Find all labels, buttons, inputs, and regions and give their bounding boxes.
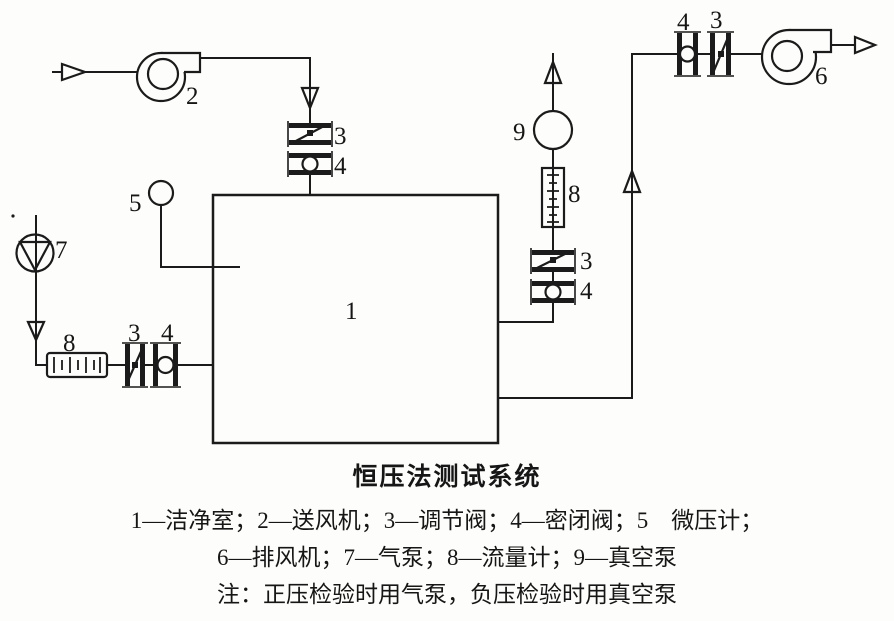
arrow-right-icon	[855, 37, 875, 53]
flowmeter-left-label: 8	[63, 330, 76, 357]
supply-fan-symbol: 2	[137, 53, 200, 110]
exhaust-fan-symbol: 6	[762, 30, 831, 90]
pipe-exhaust	[498, 54, 762, 398]
regulating-valve-right: 3	[531, 248, 593, 275]
exhaust-fan-label: 6	[815, 63, 828, 90]
sealed-valve-top: 4	[288, 151, 347, 180]
flowmeter-left-symbol: 8	[47, 330, 107, 377]
regulating-valve-right-label: 3	[580, 248, 593, 275]
micromanometer-label: 5	[129, 190, 142, 217]
flowmeter-right-label: 8	[568, 181, 581, 208]
regulating-valve-left-label: 3	[128, 320, 141, 347]
clean-room-box: 1	[213, 195, 498, 443]
sealed-valve-topright-label: 4	[677, 9, 690, 36]
regulating-valve-top-label: 3	[334, 123, 347, 150]
system-diagram: 1 2 3 4 5	[0, 0, 894, 448]
legend-line-1: 1—洁净室；2—送风机；3—调节阀；4—密闭阀；5 微压计；	[0, 502, 894, 539]
sealed-valve-top-label: 4	[334, 153, 347, 180]
micromanometer-symbol: 5	[129, 181, 173, 217]
sealed-valve-left: 4	[150, 320, 181, 387]
regulating-valve-top: 3	[288, 121, 347, 150]
figure-legend: 1—洁净室；2—送风机；3—调节阀；4—密闭阀；5 微压计； 6—排风机；7—气…	[0, 502, 894, 613]
scanned-figure-page: 1 2 3 4 5	[0, 0, 894, 621]
arrow-right-icon	[62, 64, 85, 80]
legend-line-2: 6—排风机；7—气泵；8—流量计；9—真空泵	[0, 539, 894, 576]
air-pump-label: 7	[55, 237, 68, 264]
supply-fan-label: 2	[186, 83, 199, 110]
regulating-valve-left: 3	[122, 320, 148, 387]
sealed-valve-left-label: 4	[161, 320, 174, 347]
regulating-valve-topright: 3	[707, 7, 734, 76]
sealed-valve-right: 4	[531, 278, 593, 305]
vacuum-pump-symbol: 9	[513, 111, 572, 149]
pipe-micromanometer	[161, 205, 240, 267]
fan-impeller-icon	[148, 59, 178, 89]
sealed-valve-topright: 4	[674, 9, 701, 76]
vacuum-pump-label: 9	[513, 119, 526, 146]
figure-caption: 恒压法测试系统 1—洁净室；2—送风机；3—调节阀；4—密闭阀；5 微压计； 6…	[0, 448, 894, 613]
figure-title: 恒压法测试系统	[0, 457, 894, 493]
flowmeter-right-symbol: 8	[542, 168, 581, 227]
sealed-valve-right-label: 4	[580, 278, 593, 305]
fan-impeller-icon	[772, 41, 802, 71]
air-pump-symbol: 7	[17, 235, 68, 272]
regulating-valve-topright-label: 3	[710, 7, 723, 34]
scan-speck	[11, 214, 14, 217]
clean-room-label: 1	[345, 298, 358, 325]
figure-note: 注：正压检验时用气泵，负压检验时用真空泵	[0, 576, 894, 613]
